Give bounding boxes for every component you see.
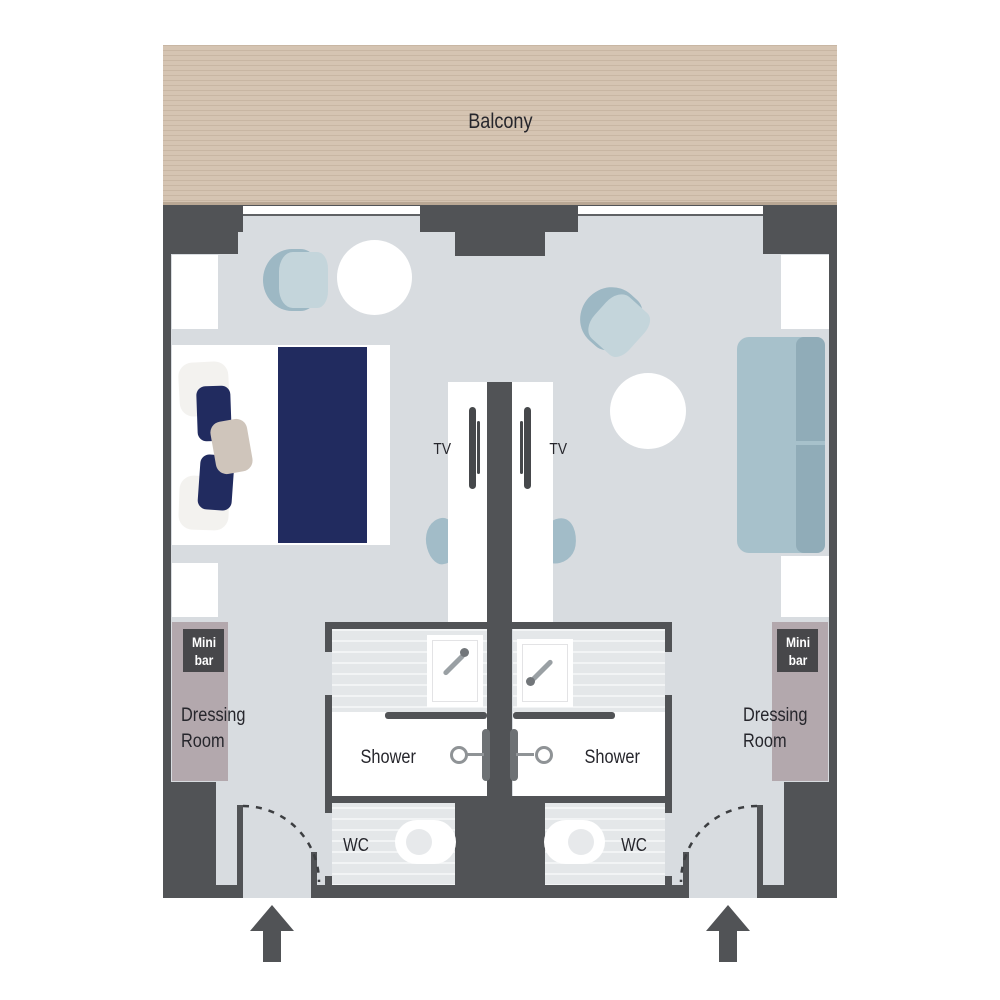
balcony-label: Balcony bbox=[380, 110, 620, 134]
bed-blanket bbox=[278, 347, 367, 543]
armchair-left-room bbox=[263, 249, 329, 311]
wall-corner-bottom-left bbox=[163, 782, 216, 898]
entrance-arrow-left-icon bbox=[250, 905, 294, 931]
round-table-left-room bbox=[337, 240, 412, 315]
washbasin-left bbox=[427, 635, 483, 707]
wc-wall-right bbox=[545, 796, 672, 803]
entry-opening-right bbox=[689, 885, 757, 898]
console-top-right bbox=[781, 255, 829, 329]
door-jamb-left bbox=[311, 852, 317, 885]
floor-plan: Balcony bbox=[0, 0, 1000, 1000]
entry-door-leaf-left bbox=[237, 805, 243, 885]
entrance-arrow-left-shaft bbox=[263, 929, 281, 962]
tv-label-left: TV bbox=[424, 441, 460, 459]
tv-screen-left bbox=[469, 407, 476, 489]
dressing-room-label-left: Dressing Room bbox=[181, 703, 256, 755]
wc-label-left: WC bbox=[330, 835, 382, 856]
washbasin-rim bbox=[432, 640, 478, 702]
entrance-arrow-right-shaft bbox=[719, 929, 737, 962]
toilet-bowl bbox=[406, 829, 432, 855]
wall-corner-bottom-right bbox=[784, 782, 837, 898]
tv-mount-left bbox=[477, 421, 480, 474]
wall-corner-top-left bbox=[163, 232, 238, 254]
wall-pier-center bbox=[455, 232, 545, 256]
sofa bbox=[737, 337, 825, 553]
tv-mount-right bbox=[520, 421, 523, 474]
tv-screen-right bbox=[524, 407, 531, 489]
wall-corner-top-right bbox=[763, 232, 837, 254]
entrance-arrow-right-icon bbox=[706, 905, 750, 931]
shower-wall-left bbox=[385, 712, 487, 719]
bathroom-wall-left-c bbox=[325, 876, 332, 885]
washbasin-rim bbox=[522, 644, 568, 702]
minibar-badge-left: Minibar bbox=[183, 629, 224, 672]
wc-label-right: WC bbox=[608, 835, 660, 856]
shower-head-right-icon bbox=[535, 746, 553, 764]
balcony-window-right bbox=[578, 206, 763, 216]
tv-label-right: TV bbox=[540, 441, 576, 459]
wc-wall-left bbox=[325, 796, 455, 803]
shower-arm-left bbox=[466, 753, 484, 756]
window-recess-left bbox=[243, 216, 420, 232]
bathroom-wall-right-c bbox=[665, 876, 672, 885]
console-bottom-right bbox=[781, 556, 829, 617]
toilet-left bbox=[395, 820, 456, 864]
shower-arm-right bbox=[516, 753, 534, 756]
shower-label-right: Shower bbox=[552, 747, 672, 769]
entry-opening-left bbox=[243, 885, 311, 898]
minibar-badge-right: Minibar bbox=[777, 629, 818, 672]
door-jamb-right bbox=[683, 852, 689, 885]
sofa-cushion-split bbox=[796, 441, 825, 445]
shower-label-left: Shower bbox=[328, 747, 448, 769]
shower-head-left-icon bbox=[450, 746, 468, 764]
sofa-backrest bbox=[796, 337, 825, 553]
shower-wall-right bbox=[513, 712, 615, 719]
dividing-wall-center bbox=[487, 382, 512, 796]
washbasin-right bbox=[517, 639, 573, 707]
window-recess-right bbox=[578, 216, 763, 232]
console-top-left bbox=[172, 255, 218, 329]
entry-door-leaf-right bbox=[757, 805, 763, 885]
bathroom-wall-right-a bbox=[665, 622, 672, 652]
bathroom-wall-left-a bbox=[325, 622, 332, 652]
faucet-right-knob bbox=[526, 677, 535, 686]
toilet-right bbox=[544, 820, 605, 864]
round-table-right-room bbox=[610, 373, 686, 449]
toilet-bowl bbox=[568, 829, 594, 855]
faucet-left-knob bbox=[460, 648, 469, 657]
wc-center-block bbox=[455, 796, 545, 890]
console-bottom-left bbox=[172, 563, 218, 617]
dressing-room-label-right: Dressing Room bbox=[743, 703, 818, 755]
balcony-window-left bbox=[243, 206, 420, 216]
armchair-seat bbox=[279, 252, 328, 308]
